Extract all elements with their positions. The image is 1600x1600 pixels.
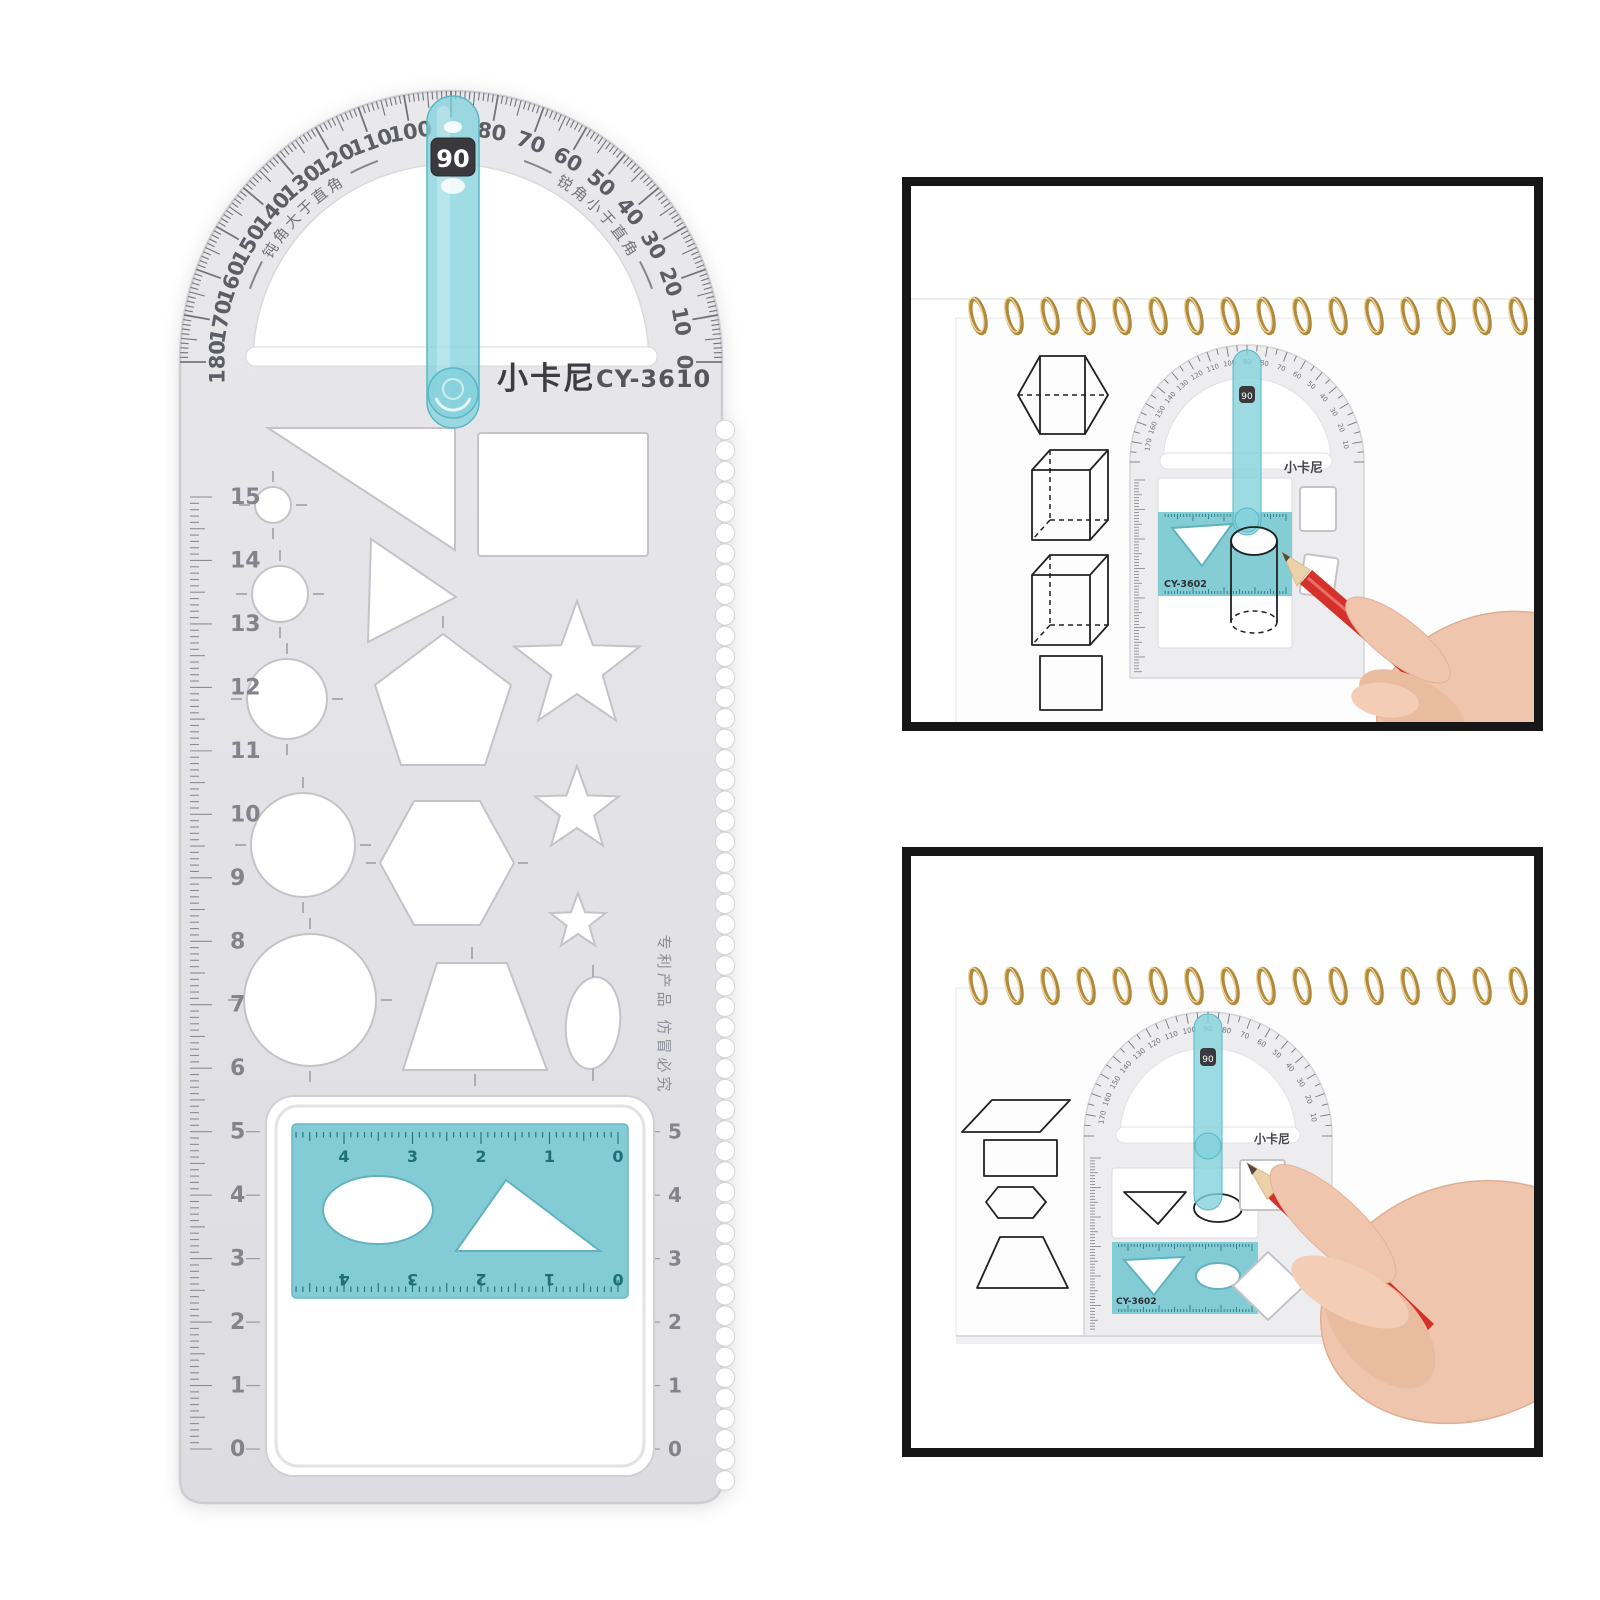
svg-text:5: 5	[668, 1120, 682, 1144]
rectangle-cutout	[478, 433, 648, 556]
svg-text:80: 80	[475, 118, 508, 147]
svg-text:4: 4	[230, 1183, 245, 1208]
svg-text:1: 1	[544, 1147, 555, 1166]
svg-text:3: 3	[230, 1247, 245, 1272]
svg-text:15: 15	[230, 485, 261, 510]
mini-model-top: CY-3602	[1164, 579, 1207, 590]
mini-model-bottom: CY-3602	[1116, 1297, 1157, 1307]
svg-text:14: 14	[230, 548, 261, 573]
svg-text:5: 5	[230, 1120, 245, 1145]
svg-text:10: 10	[667, 305, 696, 338]
inset-photo-top: 1701601501401301201101009080706050403020…	[910, 296, 1600, 817]
svg-text:13: 13	[230, 612, 261, 637]
svg-text:180: 180	[205, 340, 229, 384]
svg-text:0: 0	[612, 1270, 623, 1289]
svg-text:0: 0	[612, 1147, 623, 1166]
mini-angle-top: 90	[1241, 392, 1253, 402]
geometric-template-ruler: 1801701601501401301201101008070605040302…	[180, 91, 735, 1503]
svg-text:0: 0	[230, 1437, 245, 1462]
mini-brand-bottom: 小卡尼	[1254, 1131, 1290, 1146]
svg-text:7: 7	[230, 993, 245, 1018]
angle-display-value: 90	[436, 145, 469, 173]
insert-ellipse-cutout	[323, 1176, 433, 1244]
svg-text:2: 2	[475, 1270, 486, 1289]
svg-text:6: 6	[230, 1056, 245, 1081]
svg-text:1: 1	[668, 1374, 682, 1398]
brand-text: 小卡尼	[497, 361, 596, 397]
svg-text:1: 1	[230, 1374, 245, 1399]
svg-text:2: 2	[668, 1310, 682, 1334]
svg-text:4: 4	[668, 1183, 682, 1207]
svg-text:3: 3	[407, 1147, 418, 1166]
angle-slider-arm: 90	[427, 96, 479, 428]
svg-text:8: 8	[230, 929, 245, 954]
svg-text:3: 3	[407, 1270, 418, 1289]
mini-brand-top: 小卡尼	[1284, 460, 1323, 476]
svg-text:4: 4	[338, 1147, 349, 1166]
svg-text:10: 10	[230, 802, 261, 827]
mini-angle-bottom: 90	[1202, 1055, 1214, 1065]
svg-text:4: 4	[338, 1270, 349, 1289]
svg-text:10: 10	[1341, 440, 1350, 450]
svg-text:11: 11	[230, 739, 261, 764]
slider-notch	[444, 121, 462, 133]
mini-ruler-top: 1701601501401301201101009080706050403020…	[1130, 345, 1364, 678]
svg-text:3: 3	[668, 1247, 682, 1271]
svg-text:2: 2	[475, 1147, 486, 1166]
product-photo: 1801701601501401301201101008070605040302…	[0, 0, 1600, 1600]
svg-text:9: 9	[230, 866, 245, 891]
svg-text:12: 12	[230, 675, 261, 700]
svg-text:0: 0	[668, 1437, 682, 1461]
svg-text:2: 2	[230, 1310, 245, 1335]
svg-text:1: 1	[544, 1270, 555, 1289]
side-note-text: 专利产品 仿冒必究	[655, 935, 673, 1096]
model-text: CY-3610	[596, 365, 711, 393]
